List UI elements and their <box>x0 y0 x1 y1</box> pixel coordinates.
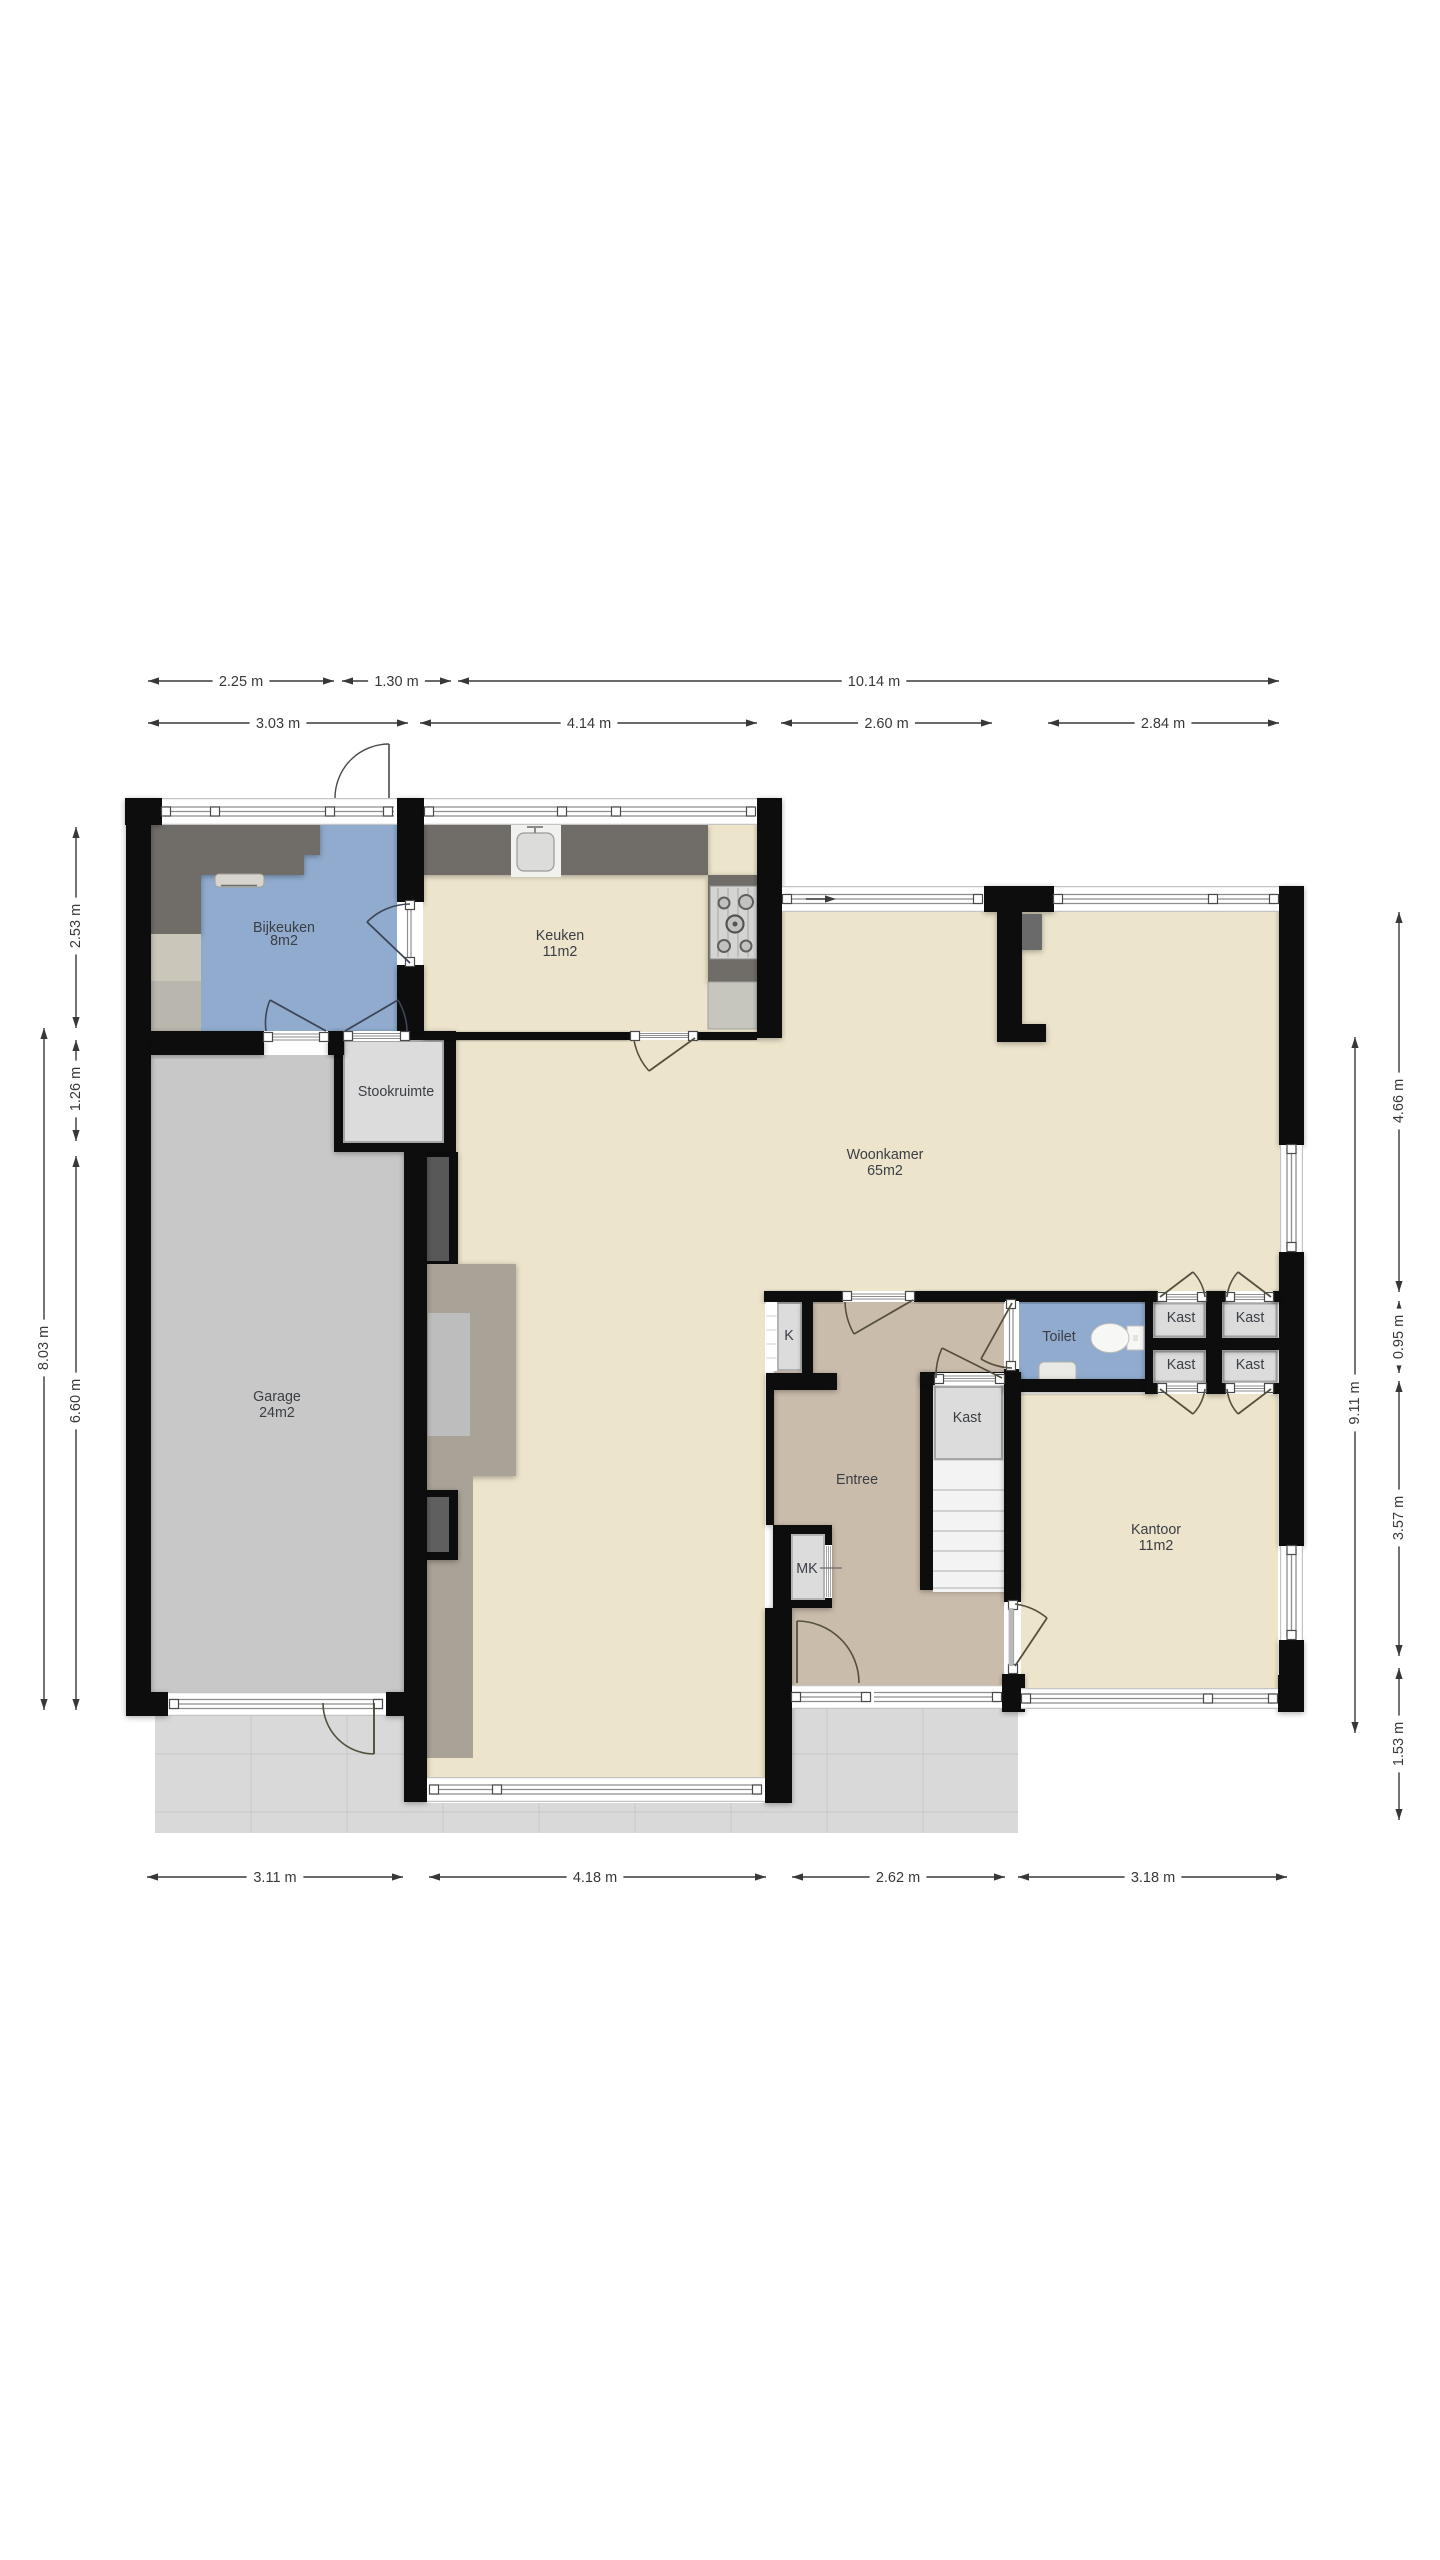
svg-text:Kantoor: Kantoor <box>1131 1522 1181 1538</box>
svg-text:4.66 m: 4.66 m <box>1391 1079 1407 1123</box>
svg-text:MK: MK <box>796 1561 818 1577</box>
svg-text:Entree: Entree <box>836 1472 878 1488</box>
svg-text:6.60 m: 6.60 m <box>68 1379 84 1423</box>
svg-text:10.14 m: 10.14 m <box>848 674 900 690</box>
svg-text:2.25 m: 2.25 m <box>219 674 263 690</box>
svg-text:K: K <box>784 1328 794 1344</box>
svg-text:11m2: 11m2 <box>543 944 578 960</box>
svg-text:Kast: Kast <box>1236 1310 1265 1326</box>
svg-text:1.53 m: 1.53 m <box>1391 1722 1407 1766</box>
svg-text:Keuken: Keuken <box>536 928 585 944</box>
svg-text:1.30 m: 1.30 m <box>374 674 418 690</box>
svg-text:2.62 m: 2.62 m <box>876 1870 920 1886</box>
svg-text:Stookruimte: Stookruimte <box>358 1084 434 1100</box>
svg-text:Garage: Garage <box>253 1389 301 1405</box>
svg-text:3.57 m: 3.57 m <box>1391 1496 1407 1540</box>
svg-text:Kast: Kast <box>1167 1357 1196 1373</box>
svg-text:65m2: 65m2 <box>867 1163 903 1179</box>
svg-text:2.84 m: 2.84 m <box>1141 716 1185 732</box>
svg-text:4.18 m: 4.18 m <box>573 1870 617 1886</box>
svg-text:2.53 m: 2.53 m <box>68 904 84 948</box>
svg-text:8m2: 8m2 <box>270 933 298 949</box>
svg-text:8.03 m: 8.03 m <box>36 1326 52 1370</box>
svg-text:3.03 m: 3.03 m <box>256 716 300 732</box>
svg-text:11m2: 11m2 <box>1139 1538 1174 1554</box>
svg-text:9.11 m: 9.11 m <box>1347 1381 1363 1424</box>
svg-text:24m2: 24m2 <box>259 1405 295 1421</box>
svg-text:Kast: Kast <box>1236 1357 1265 1373</box>
svg-text:2.60 m: 2.60 m <box>864 716 908 732</box>
svg-text:0.95 m: 0.95 m <box>1391 1315 1407 1359</box>
svg-text:Kast: Kast <box>953 1410 982 1426</box>
svg-text:Woonkamer: Woonkamer <box>847 1147 924 1163</box>
svg-text:Kast: Kast <box>1167 1310 1196 1326</box>
svg-text:1.26 m: 1.26 m <box>68 1067 84 1111</box>
svg-text:3.11 m: 3.11 m <box>253 1870 296 1886</box>
svg-text:4.14 m: 4.14 m <box>567 716 611 732</box>
svg-text:Toilet: Toilet <box>1042 1329 1075 1345</box>
svg-text:3.18 m: 3.18 m <box>1131 1870 1175 1886</box>
